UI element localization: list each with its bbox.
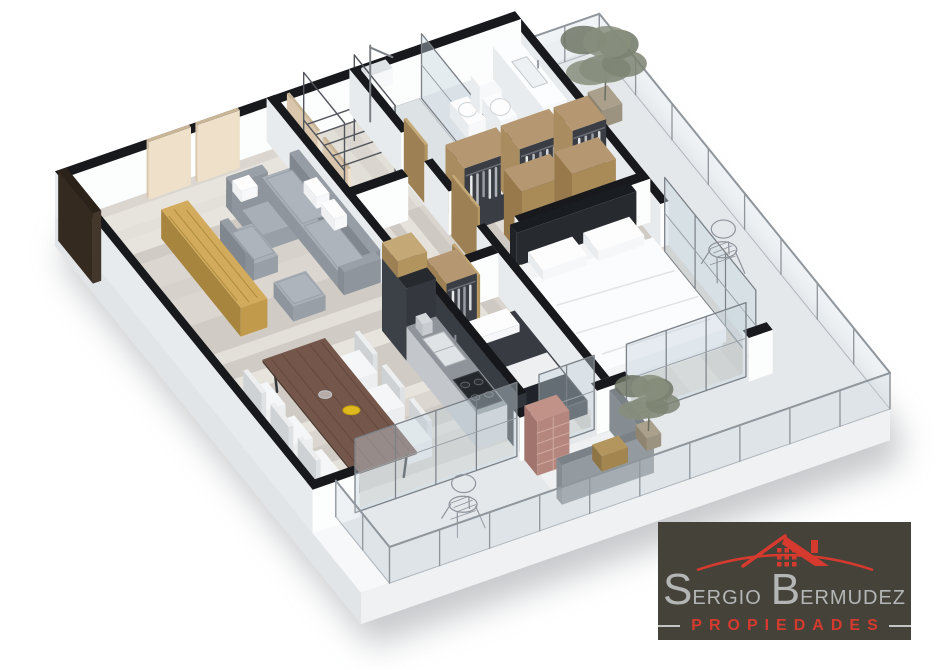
tagline-rule-right [889, 625, 911, 627]
decanter [319, 391, 332, 399]
brand-tagline: PROPIEDADES [680, 617, 888, 635]
brand-tagline-row: PROPIEDADES [658, 617, 911, 635]
tagline-rule-left [658, 625, 680, 627]
wall-south-stub-d [743, 322, 773, 382]
floorplan-image: SERGIOBERMUDEZ PROPIEDADES [0, 0, 944, 670]
brand-initial-2: B [771, 565, 800, 614]
brand-name: SERGIOBERMUDEZ [663, 568, 906, 612]
toilet-seat [490, 99, 510, 116]
fruit-bowl [343, 406, 360, 415]
brand-rest-2: ERMUDEZ [800, 587, 906, 609]
brand-initial-1: S [663, 565, 692, 614]
brand-rest-1: ERGIO [692, 587, 761, 609]
brand-logo: SERGIOBERMUDEZ PROPIEDADES [658, 522, 911, 640]
